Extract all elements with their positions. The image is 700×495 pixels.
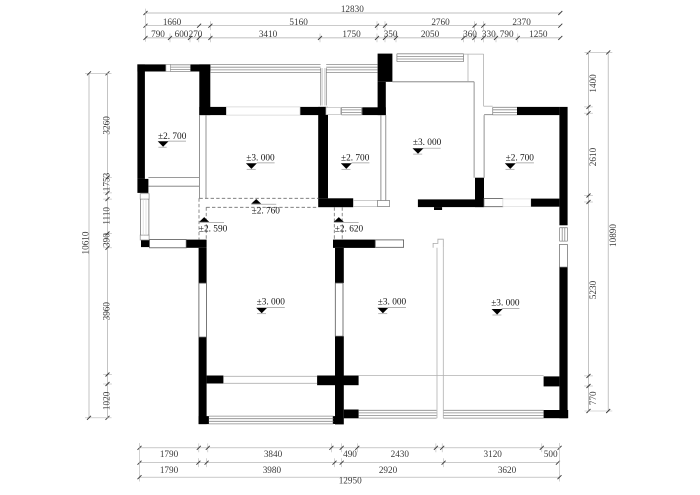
svg-text:5230: 5230 (588, 280, 598, 299)
svg-text:3840: 3840 (264, 449, 283, 459)
svg-text:2760: 2760 (431, 17, 450, 27)
svg-text:600: 600 (175, 29, 189, 39)
svg-text:±3. 000: ±3. 000 (246, 153, 275, 163)
svg-text:10610: 10610 (80, 231, 90, 254)
svg-text:770: 770 (588, 391, 598, 405)
svg-text:±2. 590: ±2. 590 (199, 224, 228, 234)
svg-text:±3. 000: ±3. 000 (378, 298, 407, 308)
svg-text:790: 790 (500, 29, 514, 39)
svg-text:±2. 700: ±2. 700 (341, 153, 370, 163)
svg-text:±2. 700: ±2. 700 (158, 132, 187, 142)
svg-text:3260: 3260 (101, 116, 111, 135)
svg-text:490: 490 (343, 449, 357, 459)
svg-text:±2. 620: ±2. 620 (335, 224, 364, 234)
svg-text:±3. 000: ±3. 000 (413, 138, 442, 148)
svg-text:790: 790 (151, 29, 165, 39)
svg-text:3120: 3120 (484, 449, 503, 459)
svg-text:12950: 12950 (339, 475, 362, 485)
svg-text:2610: 2610 (588, 147, 598, 166)
svg-text:390: 390 (101, 233, 111, 247)
svg-text:10890: 10890 (608, 224, 618, 247)
svg-text:2920: 2920 (379, 465, 398, 475)
svg-text:1790: 1790 (160, 449, 179, 459)
svg-text:350: 350 (384, 29, 398, 39)
svg-text:1660: 1660 (163, 17, 182, 27)
svg-text:2370: 2370 (512, 17, 531, 27)
svg-text:12830: 12830 (341, 4, 364, 14)
svg-text:270: 270 (189, 29, 203, 39)
svg-text:330: 330 (482, 29, 496, 39)
svg-text:1250: 1250 (529, 29, 548, 39)
svg-text:1400: 1400 (588, 74, 598, 93)
svg-text:360: 360 (463, 29, 477, 39)
svg-text:2050: 2050 (421, 29, 440, 39)
svg-text:±2. 700: ±2. 700 (506, 153, 535, 163)
svg-text:3620: 3620 (498, 465, 517, 475)
svg-text:3960: 3960 (101, 302, 111, 321)
svg-text:1020: 1020 (101, 391, 111, 410)
svg-text:±2. 760: ±2. 760 (252, 206, 281, 216)
svg-text:3980: 3980 (263, 465, 282, 475)
svg-text:±3. 000: ±3. 000 (491, 299, 520, 309)
svg-text:1790: 1790 (160, 465, 179, 475)
svg-text:1750: 1750 (342, 29, 361, 39)
svg-text:1110: 1110 (101, 207, 111, 225)
svg-text:1753: 1753 (101, 172, 111, 191)
svg-text:2430: 2430 (391, 449, 410, 459)
svg-text:500: 500 (544, 449, 558, 459)
svg-text:5160: 5160 (289, 17, 308, 27)
svg-text:3410: 3410 (259, 29, 278, 39)
svg-text:±3. 000: ±3. 000 (257, 298, 286, 308)
